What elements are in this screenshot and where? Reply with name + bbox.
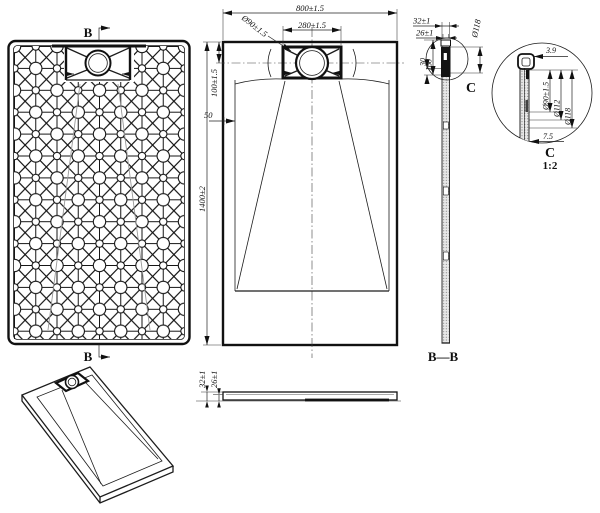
- shower-tray-drawing: B B 800±: [0, 0, 600, 513]
- drain-circle-outer: [86, 51, 111, 76]
- drain-assembly-bottom-view: [52, 44, 146, 82]
- plan-view: 800±1.5 280±1.5 Ø90±1.5 100±1.5 50 1400±…: [197, 3, 404, 358]
- detail-profile: [518, 54, 534, 146]
- dim-drain-offset-top: 100±1.5: [209, 69, 219, 97]
- technical-drawing-page: B B 800±: [0, 0, 600, 513]
- dim-thickness-inner: 26±1: [416, 28, 433, 38]
- iso-top-face: [22, 367, 173, 497]
- iso-thickness: [22, 395, 173, 503]
- dim-edge-height: 7.5: [543, 132, 553, 141]
- drain-circle-outer: [296, 47, 328, 79]
- detail-marker-c: C: [466, 81, 476, 96]
- dim-thickness-total: 32±1: [412, 16, 430, 26]
- dim-overall-width: 800±1.5: [296, 3, 324, 13]
- dim-lip-thickness: 3.9: [545, 46, 556, 55]
- dim-side-thickness-inner: 26±1: [209, 371, 219, 388]
- dim-side-thickness-total: 32±1: [197, 371, 207, 389]
- section-marker-b-bottom: B: [84, 344, 110, 364]
- dim-drain-diameter: Ø90±1.5: [239, 12, 270, 39]
- iso-slope-right: [86, 383, 158, 459]
- isometric-view: [22, 367, 173, 503]
- detail-c-view: 3.9 Ø90±1.5 Ø112 Ø118 7.5 C 1:2: [492, 43, 592, 172]
- slope-ridge-right: [339, 81, 387, 289]
- section-bb-view: C B—B 32±1 26±1 Ø118 160 30: [412, 16, 483, 365]
- iso-slope-left: [62, 390, 101, 484]
- section-bb-label: B—B: [428, 349, 459, 364]
- tray-outline: [223, 42, 397, 345]
- detail-c-label: C: [545, 146, 555, 161]
- bottom-ribbed-view: B B: [9, 25, 190, 364]
- section-label-b-top: B: [84, 25, 93, 40]
- dim-overall-length: 1400±2: [197, 185, 207, 212]
- iso-drain: [56, 373, 88, 391]
- dim-recess-diameter: Ø112: [553, 100, 562, 118]
- side-elevation-view: 32±1 26±1: [196, 371, 401, 408]
- dim-edge-offset: 50: [204, 110, 213, 120]
- detail-c-scale: 1:2: [543, 160, 558, 172]
- dim-drain-box-width: 280±1.5: [298, 20, 326, 30]
- drain-boss-side: [305, 399, 389, 402]
- section-label-b-bottom: B: [84, 349, 93, 364]
- detail-c-dimensions: 3.9 Ø90±1.5 Ø112 Ø118 7.5: [530, 46, 579, 142]
- section-marker-b-top: B: [84, 25, 110, 41]
- section-flange-top: [441, 40, 451, 46]
- flange-hook: [518, 54, 534, 69]
- side-dimensions: 32±1 26±1: [197, 371, 223, 408]
- dim-flange-diameter: Ø118: [469, 18, 483, 40]
- drain-boss-section: [441, 47, 451, 77]
- dim-hole-diameter: Ø90±1.5: [542, 82, 551, 111]
- slope-ridge-left: [237, 81, 285, 289]
- dim-outer-diameter: Ø118: [564, 108, 573, 126]
- dim-boss-height: 30: [419, 58, 428, 67]
- rib-pattern: [14, 46, 184, 339]
